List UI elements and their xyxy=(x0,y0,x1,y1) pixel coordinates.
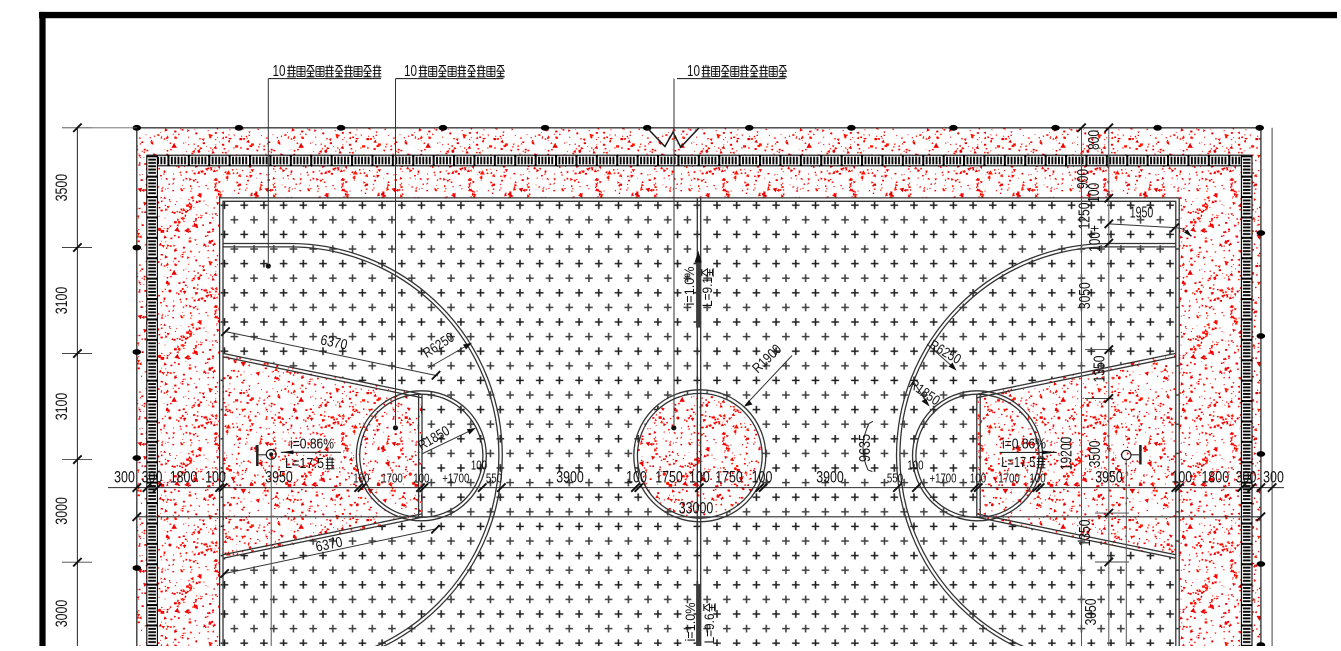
svg-text:100: 100 xyxy=(907,458,923,473)
svg-text:300: 300 xyxy=(142,468,163,486)
svg-text:i=1.0%: i=1.0% xyxy=(682,267,697,306)
svg-text:3900: 3900 xyxy=(816,468,844,486)
svg-text:100: 100 xyxy=(752,468,773,486)
svg-text:L=17.5: L=17.5 xyxy=(285,455,324,472)
svg-text:1350: 1350 xyxy=(1092,355,1109,382)
svg-text:L=9.1: L=9.1 xyxy=(700,277,715,307)
svg-text:300: 300 xyxy=(1263,468,1284,486)
svg-text:1800: 1800 xyxy=(170,468,198,486)
svg-text:100: 100 xyxy=(413,470,429,485)
svg-text:100: 100 xyxy=(689,468,710,486)
svg-text:1800: 1800 xyxy=(1202,468,1230,486)
svg-text:1750: 1750 xyxy=(715,468,743,486)
svg-text:33000: 33000 xyxy=(679,500,714,518)
svg-text:100: 100 xyxy=(626,468,647,486)
svg-text:3050: 3050 xyxy=(1077,282,1094,309)
svg-text:9635: 9635 xyxy=(857,434,874,462)
svg-text:i=0.86%: i=0.86% xyxy=(290,436,334,453)
svg-text:100+: 100+ xyxy=(1087,225,1104,252)
svg-text:+1700: +1700 xyxy=(442,470,469,485)
svg-text:100: 100 xyxy=(471,458,487,473)
svg-text:L=9.6: L=9.6 xyxy=(702,614,717,644)
svg-text:i=1.0%: i=1.0% xyxy=(683,603,698,642)
svg-text:19200: 19200 xyxy=(1059,436,1076,470)
svg-text:1950: 1950 xyxy=(1130,205,1154,222)
svg-text:300: 300 xyxy=(1236,468,1257,486)
svg-text:i=0.86%: i=0.86% xyxy=(1002,436,1046,453)
svg-text:1700: 1700 xyxy=(381,470,403,485)
svg-text:1700: 1700 xyxy=(998,470,1020,485)
svg-text:100: 100 xyxy=(1086,182,1103,202)
svg-text:100: 100 xyxy=(205,468,226,486)
svg-text:3000: 3000 xyxy=(53,600,71,628)
svg-text:3100: 3100 xyxy=(53,287,71,315)
svg-text:100: 100 xyxy=(1171,468,1192,486)
svg-text:3050: 3050 xyxy=(1083,598,1100,625)
svg-text:100: 100 xyxy=(970,470,986,485)
svg-text:10: 10 xyxy=(273,63,286,80)
svg-text:1750: 1750 xyxy=(655,468,683,486)
svg-text:L=17.5: L=17.5 xyxy=(1001,454,1035,471)
svg-text:550: 550 xyxy=(887,470,903,485)
svg-text:3500: 3500 xyxy=(1087,440,1104,467)
svg-text:1350: 1350 xyxy=(1077,519,1094,546)
svg-text:3000: 3000 xyxy=(53,497,71,525)
svg-text:10: 10 xyxy=(404,63,417,80)
svg-text:3100: 3100 xyxy=(53,393,71,421)
svg-text:300: 300 xyxy=(114,468,135,486)
svg-text:10: 10 xyxy=(687,63,700,80)
svg-text:100: 100 xyxy=(353,470,369,485)
svg-text:100: 100 xyxy=(1029,470,1045,485)
svg-text:550: 550 xyxy=(486,470,502,485)
svg-text:3500: 3500 xyxy=(53,174,71,202)
svg-text:+1700: +1700 xyxy=(930,470,957,485)
svg-text:3900: 3900 xyxy=(556,468,584,486)
svg-text:800: 800 xyxy=(1086,130,1103,150)
